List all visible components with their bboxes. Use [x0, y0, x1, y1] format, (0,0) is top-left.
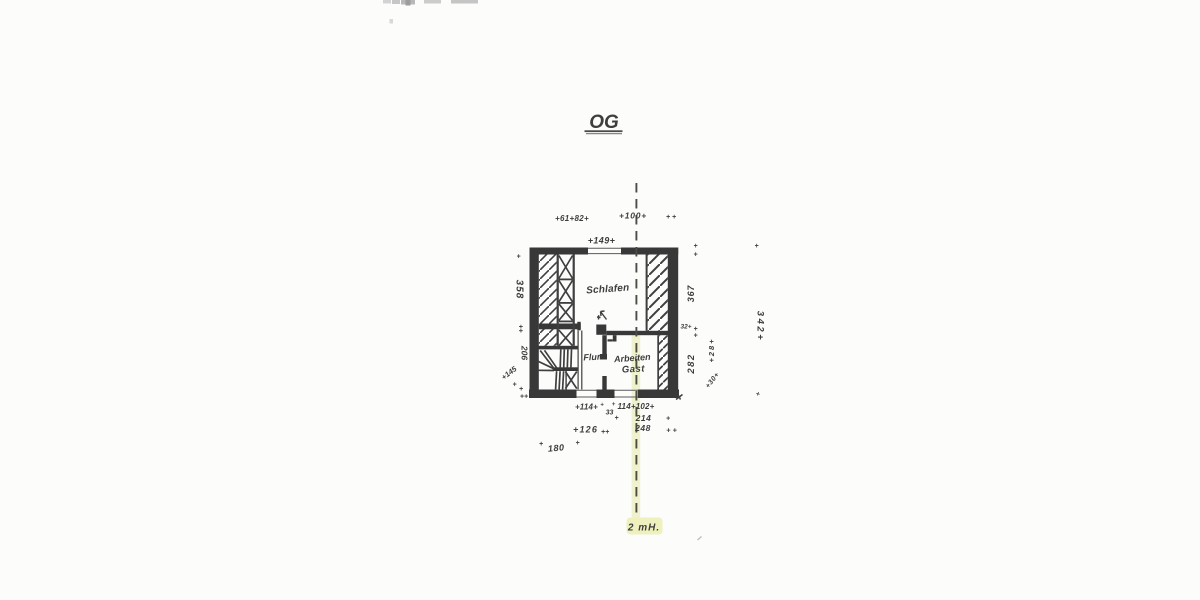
- svg-text:Flur: Flur: [583, 352, 601, 363]
- svg-text:+114+: +114+: [575, 403, 598, 412]
- svg-text:+: +: [693, 333, 697, 340]
- svg-text:367: 367: [686, 285, 696, 303]
- svg-text:206: 206: [520, 345, 530, 360]
- svg-text:+ +: + +: [666, 426, 677, 435]
- svg-text:+: +: [600, 403, 604, 409]
- svg-text:++: ++: [517, 324, 524, 332]
- svg-text:+: +: [666, 416, 670, 423]
- svg-text:Schlafen: Schlafen: [586, 283, 630, 297]
- svg-text:+149+: +149+: [588, 236, 616, 246]
- svg-text:+: +: [519, 386, 523, 393]
- svg-text:Gast: Gast: [622, 363, 646, 375]
- svg-text:+: +: [754, 243, 758, 250]
- svg-text:+: +: [575, 440, 579, 447]
- svg-text:+145: +145: [500, 364, 520, 382]
- svg-text:+: +: [693, 243, 697, 250]
- svg-text:214: 214: [635, 413, 652, 423]
- svg-text:180: 180: [547, 442, 565, 453]
- svg-text:+28+: +28+: [707, 337, 716, 362]
- svg-text:+30+: +30+: [705, 371, 722, 389]
- svg-text:++: ++: [601, 429, 609, 436]
- svg-text:+: +: [612, 402, 616, 408]
- svg-text:++: ++: [520, 394, 528, 401]
- svg-text:OG: OG: [589, 112, 619, 133]
- svg-text:358: 358: [514, 280, 525, 300]
- svg-text:+61+82+: +61+82+: [555, 214, 589, 223]
- svg-text:114+102+: 114+102+: [618, 402, 655, 411]
- svg-text:+: +: [754, 391, 760, 399]
- svg-text:2 mH.: 2 mH.: [627, 523, 660, 534]
- svg-text:+: +: [614, 415, 618, 422]
- svg-text:+100+: +100+: [619, 211, 647, 221]
- svg-text:282: 282: [686, 353, 697, 374]
- svg-text:32+: 32+: [680, 324, 691, 331]
- svg-text:+126: +126: [573, 425, 598, 435]
- svg-text:Arbeiten: Arbeiten: [613, 352, 652, 365]
- svg-text:248: 248: [634, 423, 651, 433]
- svg-text:+: +: [693, 252, 697, 259]
- svg-text:+: +: [539, 441, 543, 448]
- svg-text:33: 33: [606, 410, 614, 417]
- svg-text:+: +: [516, 254, 520, 261]
- svg-text:342+: 342+: [755, 311, 766, 342]
- svg-text:+: +: [512, 382, 516, 389]
- svg-text:+ +: + +: [666, 214, 676, 221]
